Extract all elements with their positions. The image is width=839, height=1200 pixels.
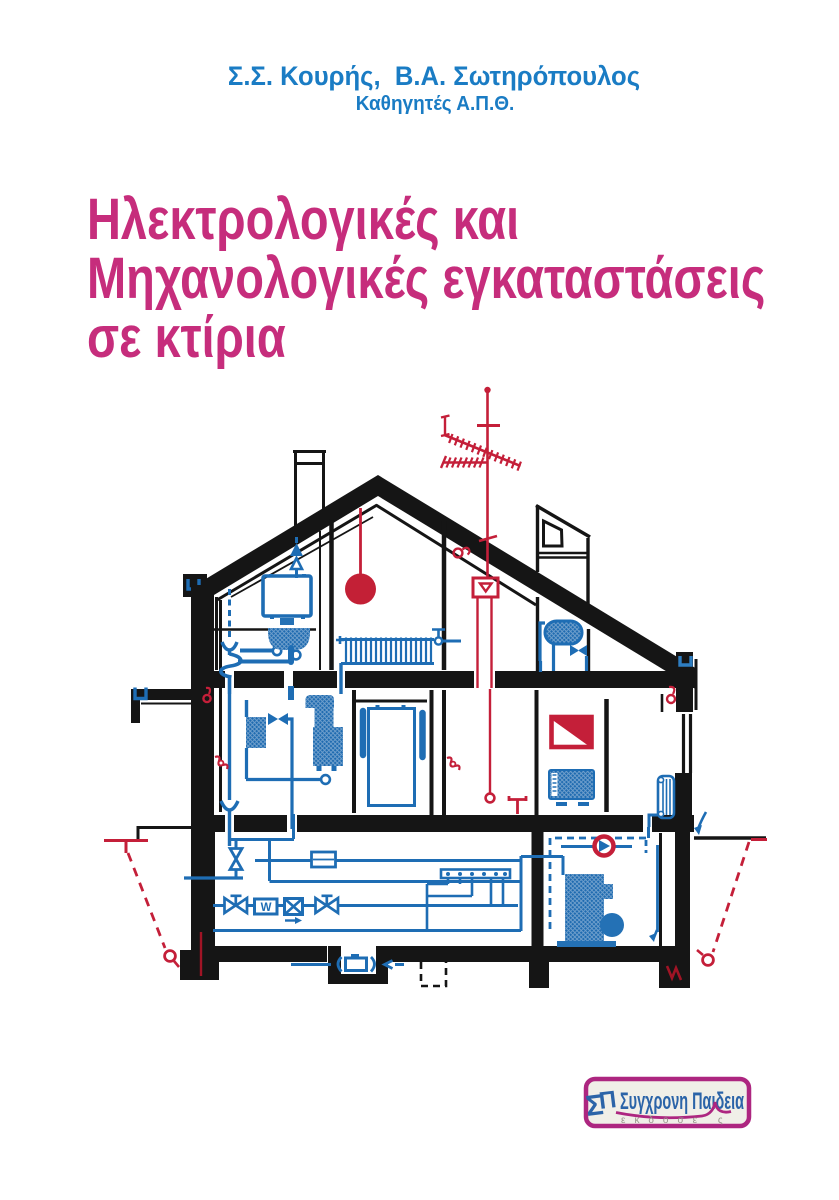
svg-text:W: W [261,902,272,914]
svg-text:Π: Π [597,1086,618,1115]
svg-text:εκδοσε ς: εκδοσε ς [621,1115,732,1126]
